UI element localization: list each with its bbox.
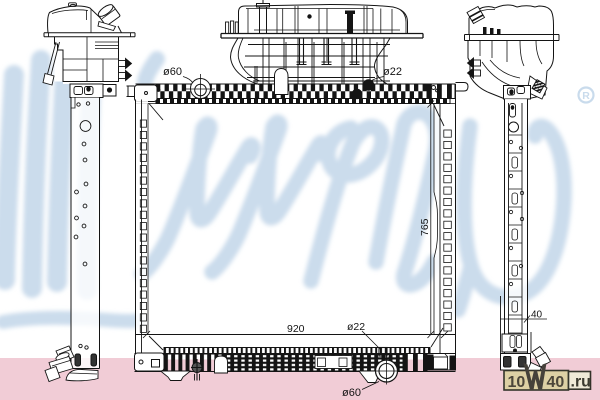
svg-text:.ru: .ru (571, 374, 591, 391)
svg-text:ø60: ø60 (163, 66, 182, 78)
svg-text:ø22: ø22 (383, 66, 402, 78)
svg-text:40: 40 (547, 374, 565, 391)
svg-text:920: 920 (287, 323, 305, 335)
svg-text:10: 10 (508, 374, 526, 391)
svg-text:ø60: ø60 (342, 387, 361, 399)
svg-text:R: R (582, 90, 590, 102)
svg-text:40: 40 (531, 310, 543, 321)
svg-text:765: 765 (419, 218, 431, 236)
